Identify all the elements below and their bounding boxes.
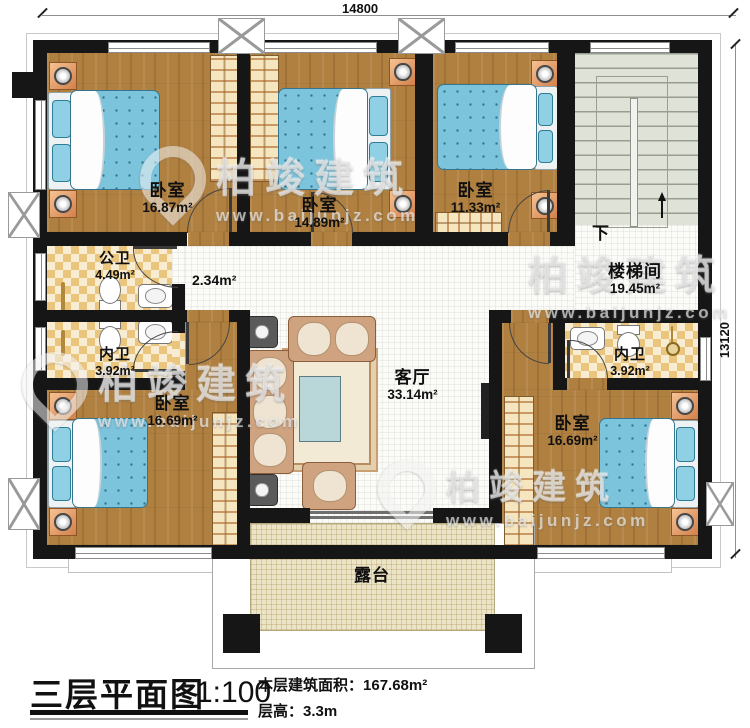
bay-window	[218, 18, 265, 54]
room-label-public-bathroom: 公卫 4.49m²	[75, 251, 155, 282]
door-opening	[511, 310, 549, 323]
pillow	[676, 466, 695, 501]
bed-sheet	[71, 91, 105, 189]
sliding-door	[310, 516, 433, 519]
nightstand	[531, 60, 558, 87]
sofa	[288, 316, 376, 362]
window-x-icon	[9, 193, 39, 237]
plant-icon	[255, 483, 268, 496]
room-area: 3.92m²	[75, 364, 155, 378]
bed	[437, 84, 537, 170]
lamp-icon	[54, 195, 73, 214]
floor-plan-canvas: 柏竣建筑 www.baijunjz.com 柏竣建筑 www.baijunjz.…	[0, 0, 750, 728]
flue-box	[12, 72, 34, 98]
lamp-icon	[54, 67, 73, 86]
room-label-ensuite-right: 内卫 3.92m²	[588, 347, 672, 378]
wall	[489, 310, 511, 323]
hallway-area-label: 2.34m²	[192, 272, 236, 288]
dimension-tick	[37, 8, 48, 19]
bed-headboard	[365, 88, 391, 190]
window	[700, 337, 711, 381]
room-label-terrace: 露台	[322, 566, 422, 585]
stair-arrowhead-icon	[658, 192, 666, 201]
wall	[549, 310, 712, 323]
nightstand	[671, 392, 699, 420]
door-opening	[567, 378, 607, 390]
pillow	[52, 427, 71, 462]
terrace-column	[485, 614, 522, 653]
door-opening	[508, 232, 550, 246]
tv	[481, 383, 489, 439]
floor-area-label: 本层建筑面积：	[258, 677, 363, 694]
wall	[489, 310, 502, 523]
room-area: 16.69m²	[525, 433, 620, 448]
window	[537, 547, 665, 559]
room-area: 4.49m²	[75, 268, 155, 282]
room-area: 11.33m²	[428, 200, 523, 215]
coffee-table	[299, 376, 341, 442]
wall	[553, 378, 567, 390]
floor-area-info: 本层建筑面积：167.68m²	[258, 674, 427, 695]
wall	[550, 232, 575, 246]
room-name: 卧室	[525, 414, 620, 433]
room-area: 33.14m²	[365, 387, 460, 402]
room-name: 卧室	[125, 394, 220, 413]
room-label-ensuite-left: 内卫 3.92m²	[75, 347, 155, 378]
dimension-line-top	[42, 15, 736, 16]
room-name: 卧室	[428, 181, 523, 200]
pillow	[676, 427, 695, 462]
window	[455, 42, 549, 53]
side-table	[246, 474, 278, 506]
stair-direction-arrow	[661, 200, 663, 218]
floor-height-label: 层高：	[258, 703, 303, 720]
wardrobe	[212, 412, 239, 547]
lamp-icon	[54, 513, 73, 532]
wall	[607, 378, 712, 390]
nightstand	[671, 508, 699, 536]
sofa-cushion	[335, 322, 369, 356]
sofa	[246, 350, 294, 474]
sink	[138, 284, 173, 308]
dimension-width: 14800	[342, 1, 378, 16]
room-label-bedroom-top-left: 卧室 16.87m²	[120, 181, 215, 215]
bay-window	[706, 482, 734, 526]
bay-window	[8, 192, 40, 238]
lamp-icon	[394, 195, 412, 214]
bed-sheet	[333, 89, 367, 189]
door-opening	[188, 232, 229, 246]
wall	[557, 53, 575, 235]
room-name: 客厅	[365, 368, 460, 387]
window-x-icon	[9, 479, 39, 529]
pillow	[52, 466, 71, 501]
room-label-stairwell: 楼梯间 19.45m²	[589, 262, 681, 296]
wall	[433, 508, 500, 523]
side-table	[246, 316, 278, 348]
bay-window	[8, 478, 40, 530]
window-seat	[435, 212, 502, 234]
window	[35, 100, 46, 190]
bed-sheet	[645, 419, 674, 507]
lamp-icon	[54, 397, 73, 416]
room-area: 19.45m²	[589, 281, 681, 296]
pillow	[52, 100, 71, 138]
bay-window	[398, 18, 445, 54]
bed-sheet	[73, 419, 102, 507]
room-area: 3.92m²	[588, 364, 672, 378]
nightstand	[49, 508, 77, 536]
floor-height-info: 层高：3.3m	[258, 700, 337, 721]
wall	[238, 508, 310, 523]
room-name: 楼梯间	[589, 262, 681, 281]
stair-handrail	[630, 98, 638, 227]
wall	[352, 232, 508, 246]
room-name: 内卫	[75, 347, 155, 364]
pillow	[369, 96, 388, 136]
room-label-bedroom-top-middle: 卧室 14.89m²	[272, 196, 367, 230]
stairs-down-label: 下	[592, 219, 609, 244]
window	[108, 42, 210, 53]
sofa-cushion	[313, 470, 347, 502]
sofa-cushion	[253, 433, 287, 467]
sink-bowl	[145, 288, 166, 303]
room-label-bedroom-bottom-left: 卧室 16.69m²	[125, 394, 220, 428]
dimension-tick	[728, 8, 739, 19]
wall	[237, 53, 250, 232]
lamp-icon	[676, 513, 695, 532]
nightstand	[49, 392, 77, 420]
sofa-cushion	[253, 357, 287, 391]
wall	[33, 232, 187, 246]
door-opening	[311, 232, 352, 246]
room-name: 露台	[322, 566, 422, 585]
window-x-icon	[219, 19, 264, 53]
room-name: 内卫	[588, 347, 672, 364]
bed-headboard	[534, 86, 558, 170]
wardrobe	[250, 55, 279, 182]
dimension-line-right	[735, 45, 736, 558]
window	[253, 42, 377, 53]
bed	[278, 88, 368, 190]
title-underline	[30, 710, 248, 715]
bed-sheet	[499, 85, 536, 169]
plant-icon	[255, 325, 268, 338]
floor-corridor	[489, 246, 575, 310]
drawing-title: 三层平面图	[30, 668, 205, 716]
lamp-icon	[536, 65, 554, 83]
pillow	[538, 93, 553, 126]
wall	[172, 284, 185, 333]
nightstand	[49, 62, 77, 90]
wall	[229, 232, 250, 246]
room-label-living-room: 客厅 33.14m²	[365, 368, 460, 402]
window-x-icon	[399, 19, 444, 53]
window-x-icon	[707, 483, 733, 525]
wall	[250, 232, 311, 246]
sliding-door	[310, 511, 433, 514]
window	[35, 327, 46, 371]
nightstand	[389, 58, 416, 86]
sofa-cushion	[297, 322, 331, 356]
window	[590, 42, 670, 53]
room-label-bedroom-top-right: 卧室 11.33m²	[428, 181, 523, 215]
floor-height-value: 3.3m	[303, 703, 337, 720]
room-area: 16.87m²	[120, 200, 215, 215]
window	[35, 253, 46, 301]
title-underline	[30, 718, 248, 720]
wall	[33, 310, 187, 322]
bed-headboard	[672, 420, 699, 508]
room-name: 卧室	[120, 181, 215, 200]
lamp-icon	[394, 63, 412, 82]
pillow	[538, 130, 553, 163]
pillow	[369, 142, 388, 182]
nightstand	[389, 190, 416, 218]
floor-area-value: 167.68m²	[363, 677, 427, 694]
lamp-icon	[676, 397, 695, 416]
bed	[70, 90, 160, 190]
pillow	[52, 144, 71, 182]
terrace-column	[223, 614, 260, 653]
sofa-cushion	[253, 395, 287, 429]
wall	[33, 378, 185, 390]
window	[75, 547, 212, 559]
room-label-bedroom-bottom-right: 卧室 16.69m²	[525, 414, 620, 448]
room-name: 公卫	[75, 251, 155, 268]
dimension-height: 13120	[717, 322, 732, 358]
door-opening	[187, 310, 229, 322]
towel-rail	[61, 282, 65, 312]
wardrobe	[210, 55, 239, 182]
armchair	[302, 462, 356, 510]
nightstand	[49, 190, 77, 218]
room-name: 卧室	[272, 196, 367, 215]
bed	[72, 418, 148, 508]
room-area: 16.69m²	[125, 413, 220, 428]
room-area: 14.89m²	[272, 215, 367, 230]
towel-rail	[61, 330, 65, 356]
